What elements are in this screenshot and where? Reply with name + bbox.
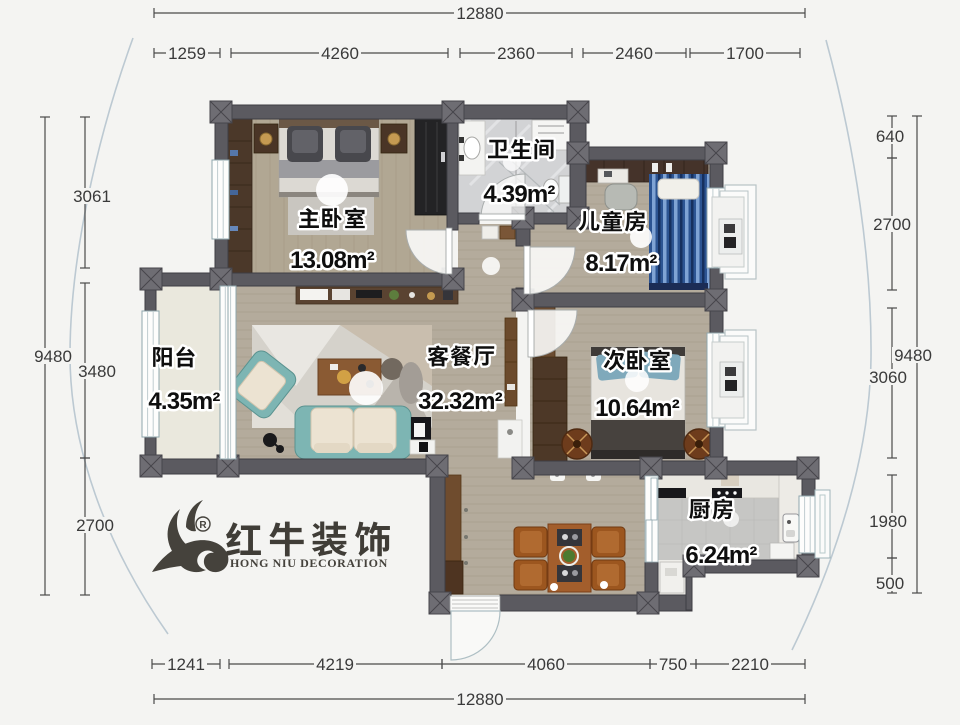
- svg-text:3061: 3061: [73, 187, 111, 206]
- svg-text:13.08m²: 13.08m²: [290, 247, 375, 274]
- svg-text:3480: 3480: [78, 362, 116, 381]
- svg-text:1241: 1241: [167, 655, 205, 674]
- svg-text:HONG NIU DECORATION: HONG NIU DECORATION: [230, 556, 388, 570]
- svg-text:12880: 12880: [456, 4, 503, 23]
- svg-text:500: 500: [876, 574, 904, 593]
- svg-text:3060: 3060: [869, 368, 907, 387]
- svg-text:2700: 2700: [76, 516, 114, 535]
- svg-text:6.24m²: 6.24m²: [685, 542, 757, 569]
- svg-text:1980: 1980: [869, 512, 907, 531]
- svg-text:9480: 9480: [894, 346, 932, 365]
- svg-text:2700: 2700: [873, 215, 911, 234]
- svg-text:750: 750: [659, 655, 687, 674]
- svg-text:32.32m²: 32.32m²: [418, 388, 503, 415]
- svg-text:1700: 1700: [726, 44, 764, 63]
- svg-text:4219: 4219: [316, 655, 354, 674]
- svg-text:2460: 2460: [615, 44, 653, 63]
- svg-text:2360: 2360: [497, 44, 535, 63]
- svg-text:4060: 4060: [527, 655, 565, 674]
- svg-text:R: R: [199, 520, 207, 531]
- svg-text:1259: 1259: [168, 44, 206, 63]
- svg-text:4.35m²: 4.35m²: [148, 388, 220, 415]
- svg-text:640: 640: [876, 127, 904, 146]
- svg-text:9480: 9480: [34, 347, 72, 366]
- svg-text:10.64m²: 10.64m²: [595, 395, 680, 422]
- svg-text:4.39m²: 4.39m²: [483, 181, 555, 208]
- svg-text:12880: 12880: [456, 690, 503, 709]
- svg-text:2210: 2210: [731, 655, 769, 674]
- svg-text:4260: 4260: [321, 44, 359, 63]
- svg-text:8.17m²: 8.17m²: [585, 250, 657, 277]
